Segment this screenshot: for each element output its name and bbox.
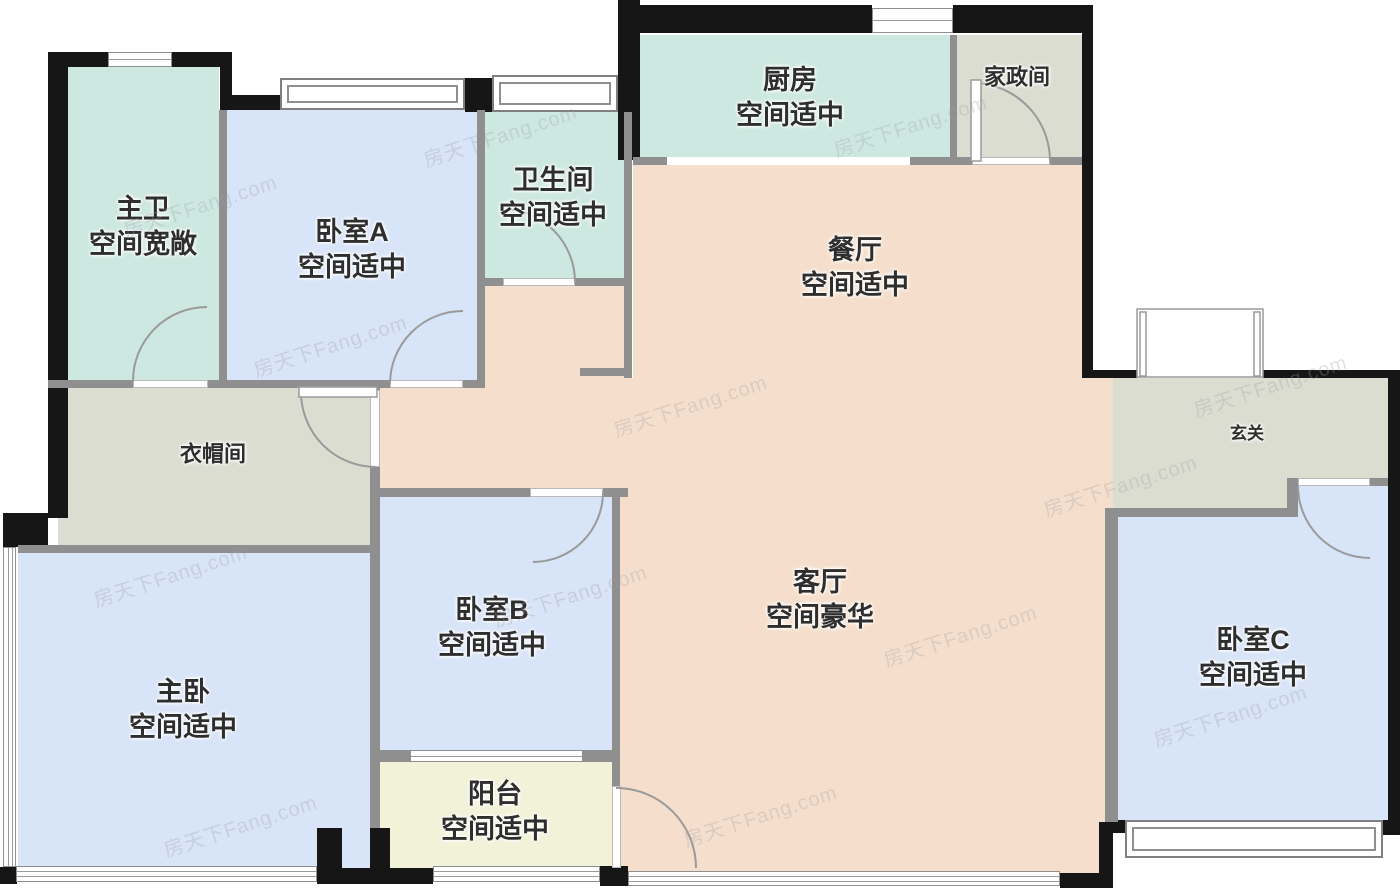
door-opening-cloakroom <box>370 390 380 467</box>
room-name: 家政间 <box>984 64 1050 93</box>
room-bedroom-c-floor-notch <box>1298 486 1388 515</box>
door-opening-bedroom-b <box>530 488 603 497</box>
room-label-bedroom-b: 卧室B 空间适中 <box>438 593 546 663</box>
room-label-cloakroom: 衣帽间 <box>180 441 246 470</box>
exterior-wall-segment <box>0 867 17 884</box>
door-arc-entry-right <box>1195 314 1257 376</box>
room-name: 主卫 <box>89 192 197 227</box>
room-label-living: 客厅 空间豪华 <box>766 565 874 635</box>
wall-segment <box>1287 478 1298 517</box>
wall-segment <box>377 488 530 497</box>
hall-corridor-floor <box>380 388 628 488</box>
door-opening-bathroom <box>503 278 575 286</box>
window-kitchen-top <box>872 8 953 33</box>
room-name: 厨房 <box>736 63 844 98</box>
exterior-wall-segment <box>1082 5 1093 378</box>
door-opening-bedroom-a <box>390 380 463 388</box>
wall-segment <box>219 110 227 388</box>
room-housekeeping-floor <box>957 35 1082 157</box>
room-label-bedroom-a: 卧室A 空间适中 <box>298 215 406 285</box>
door-opening-housekeeping <box>972 157 1050 165</box>
room-label-bathroom: 卫生间 空间适中 <box>499 163 607 233</box>
room-label-balcony: 阳台 空间适中 <box>441 777 549 847</box>
door-leaf-entry-right <box>1254 312 1260 376</box>
wall-segment <box>1370 478 1388 486</box>
door-opening-balcony <box>612 786 621 868</box>
exterior-wall-segment <box>1388 370 1400 832</box>
wall-segment <box>18 545 372 553</box>
window-bedroom-b-balcony <box>410 750 583 762</box>
room-label-zhuwei: 主卫 空间宽敞 <box>89 192 197 262</box>
room-note: 空间豪华 <box>766 600 874 635</box>
room-label-bedroom-c: 卧室C 空间适中 <box>1199 623 1307 693</box>
exterior-wall-segment <box>48 52 108 67</box>
room-name: 衣帽间 <box>180 441 246 470</box>
room-note: 空间适中 <box>499 198 607 233</box>
room-name: 卧室A <box>298 215 406 250</box>
window-bedroom-c-bottom <box>1125 820 1383 858</box>
window-bathroom-top <box>492 75 618 112</box>
room-name: 卧室B <box>438 593 546 628</box>
room-name: 卫生间 <box>499 163 607 198</box>
room-label-master: 主卧 空间适中 <box>129 675 237 745</box>
exterior-wall-segment <box>953 5 1093 33</box>
exterior-wall-segment <box>618 5 872 33</box>
exterior-wall-segment <box>317 868 433 884</box>
room-note: 空间适中 <box>801 268 909 303</box>
exterior-wall-segment <box>227 95 283 110</box>
wall-segment <box>910 157 972 165</box>
wall-segment <box>1050 157 1082 165</box>
entry-door-frame <box>1137 309 1263 377</box>
window-master-bottom <box>16 866 317 882</box>
door-leaf-entry-left <box>1140 312 1146 376</box>
room-note: 空间适中 <box>736 98 844 133</box>
wall-segment <box>477 110 485 388</box>
exterior-wall-segment <box>1082 370 1137 378</box>
wall-segment <box>370 467 380 828</box>
wall-segment <box>583 750 612 762</box>
floorplan: 主卫 空间宽敞 卧室A 空间适中 卫生间 空间适中 厨房 空间适中 家政间 餐厅… <box>0 0 1400 888</box>
room-label-dining: 餐厅 空间适中 <box>801 233 909 303</box>
room-name: 卧室C <box>1199 623 1307 658</box>
wall-segment <box>580 368 624 376</box>
room-label-entry: 玄关 <box>1230 423 1264 445</box>
room-name: 主卧 <box>129 675 237 710</box>
window-living-bottom <box>628 871 1060 886</box>
door-opening-zhuwei <box>133 380 208 388</box>
kitchen-pass-opening <box>667 157 910 165</box>
wall-segment <box>208 380 219 388</box>
room-note: 空间适中 <box>438 628 546 663</box>
window-bedroom-a-top <box>280 78 465 110</box>
wall-segment <box>950 35 957 157</box>
wall-segment <box>575 278 624 286</box>
door-opening-bedroom-c <box>1298 478 1370 486</box>
wall-segment <box>1105 515 1118 822</box>
exterior-wall-segment <box>1099 822 1113 885</box>
window-zhuwei-top <box>108 52 172 67</box>
wall-segment <box>48 380 133 388</box>
wall-segment <box>633 157 667 165</box>
wall-segment <box>380 750 410 762</box>
exterior-wall-segment <box>48 52 68 518</box>
room-note: 空间适中 <box>129 710 237 745</box>
exterior-wall-segment <box>1263 370 1400 378</box>
wall-segment <box>485 278 503 286</box>
exterior-wall-segment <box>600 866 628 886</box>
door-arc-entry-left <box>1143 314 1205 376</box>
room-note: 空间适中 <box>441 812 549 847</box>
wall-segment <box>219 380 390 388</box>
room-note: 空间适中 <box>1199 658 1307 693</box>
wall-segment <box>624 112 632 378</box>
room-name: 玄关 <box>1230 423 1264 445</box>
window-balcony-bottom <box>433 866 600 882</box>
wall-segment <box>463 380 485 388</box>
room-name: 阳台 <box>441 777 549 812</box>
room-label-housekeeping: 家政间 <box>984 64 1050 93</box>
room-note: 空间适中 <box>298 250 406 285</box>
room-note: 空间宽敞 <box>89 227 197 262</box>
window-master-left <box>3 547 16 867</box>
wall-segment <box>1105 508 1290 517</box>
room-label-kitchen: 厨房 空间适中 <box>736 63 844 133</box>
wall-segment <box>612 488 620 788</box>
room-name: 餐厅 <box>801 233 909 268</box>
exterior-wall-segment <box>3 513 48 547</box>
room-name: 客厅 <box>766 565 874 600</box>
exterior-wall-segment <box>465 78 492 112</box>
